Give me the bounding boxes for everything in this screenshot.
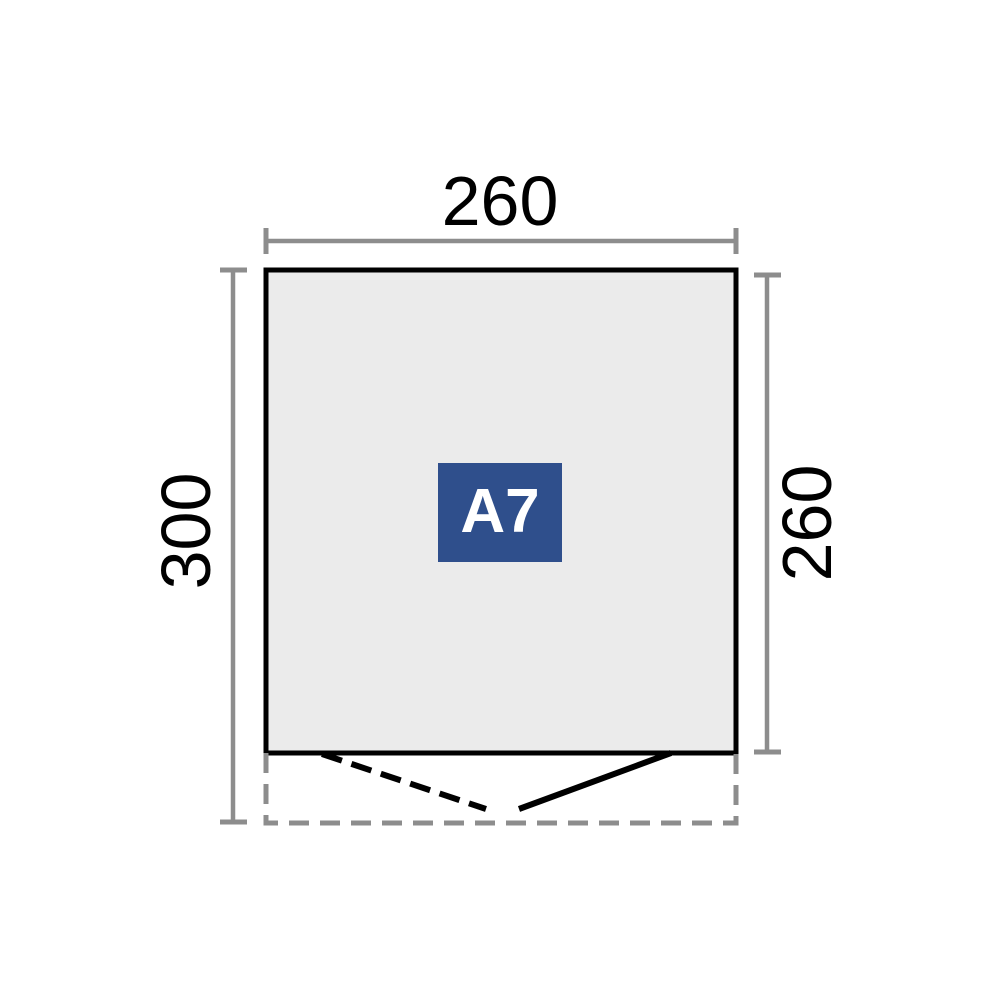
- model-label: A7: [460, 477, 539, 546]
- left-door-swing-dashed-line: [322, 754, 486, 809]
- diagram-canvas: 260 300 260 A7: [0, 0, 1000, 1000]
- dimension-label-width: 260: [442, 162, 559, 240]
- right-door-swing-line: [519, 753, 671, 809]
- foundation-dashed-outline: [266, 753, 736, 823]
- dimension-label-inner-depth: 260: [768, 465, 846, 582]
- floor-plan-diagram: 260 300 260 A7: [0, 0, 1000, 1000]
- dimension-label-total-depth: 300: [147, 473, 225, 590]
